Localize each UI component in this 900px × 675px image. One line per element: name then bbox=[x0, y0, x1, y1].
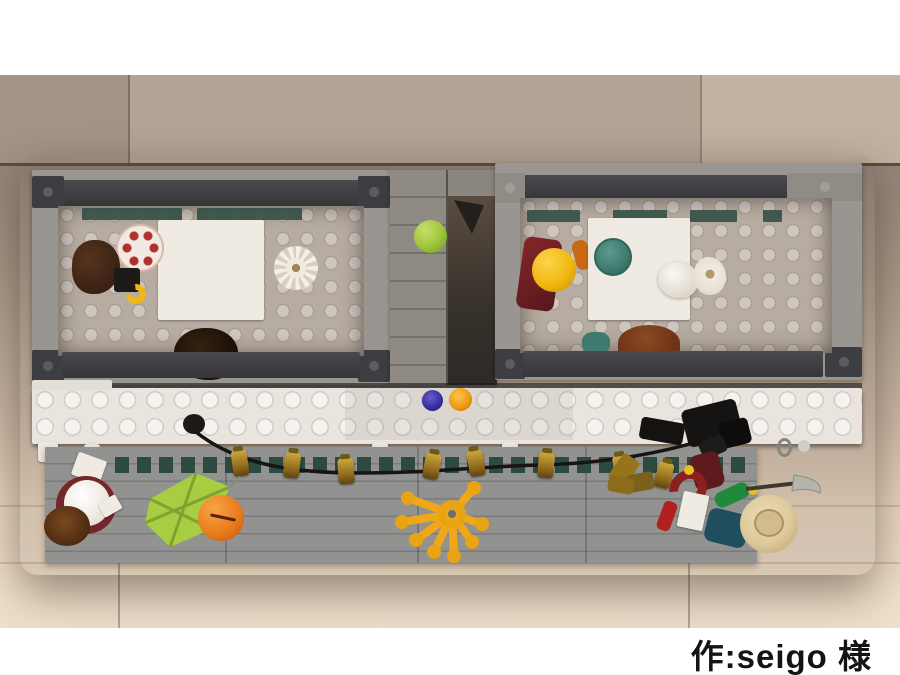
brown-bowl bbox=[44, 506, 90, 546]
minifig-cluster bbox=[608, 443, 823, 561]
credit-caption: 作:seigo 様 bbox=[691, 630, 872, 675]
yellow-octopus bbox=[392, 470, 510, 566]
gold-lantern bbox=[537, 451, 555, 478]
gold-lantern bbox=[283, 451, 302, 479]
red-piece bbox=[655, 500, 678, 533]
tan-cowboy-hat bbox=[740, 495, 798, 553]
yellow-clip bbox=[684, 465, 694, 475]
minifig-chef bbox=[40, 448, 152, 556]
hat-crown bbox=[754, 509, 784, 537]
photo-frame: 作:seigo 様 bbox=[0, 0, 900, 675]
gold-lantern bbox=[337, 457, 355, 484]
lego-scene-photo bbox=[0, 75, 900, 628]
gold-lantern bbox=[607, 475, 635, 495]
